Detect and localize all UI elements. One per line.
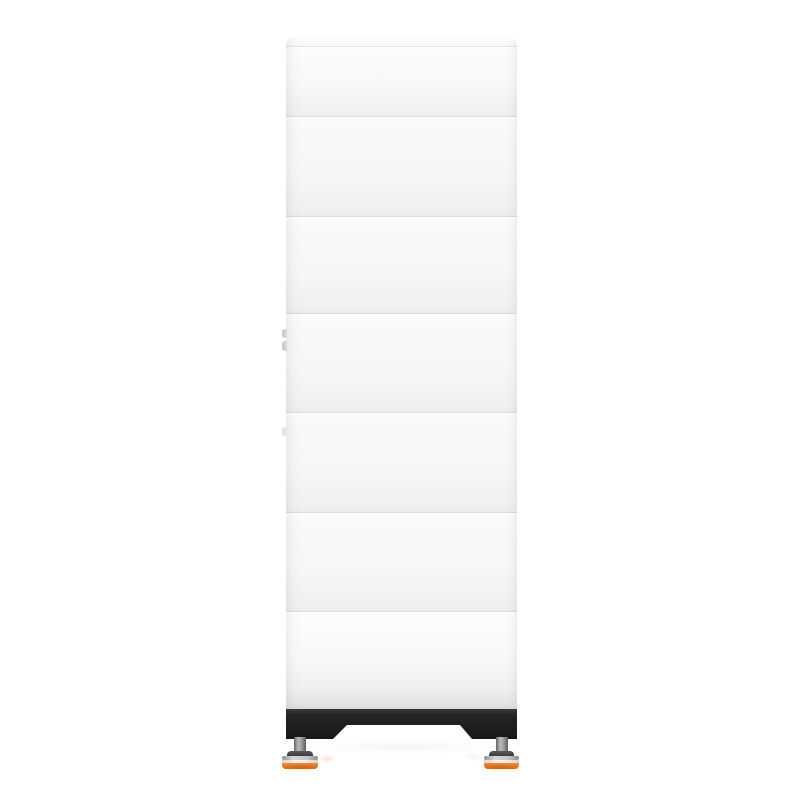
battery-module <box>286 413 517 513</box>
orange-reflection <box>318 755 336 762</box>
top-cover-lid <box>286 37 517 47</box>
foot-contact-shadow <box>279 764 321 770</box>
battery-module <box>286 217 517 314</box>
battery-module <box>286 513 517 612</box>
black-base-plinth <box>286 709 517 739</box>
floor-shadow <box>305 742 501 752</box>
left-edge-tab <box>282 427 287 436</box>
floor-smudge <box>464 753 484 760</box>
battery-tower <box>286 37 517 709</box>
foot-contact-shadow <box>480 764 522 770</box>
left-edge-tab <box>282 329 287 338</box>
battery-module <box>286 612 517 709</box>
battery-module <box>286 314 517 413</box>
battery-module <box>286 117 517 217</box>
left-edge-tab <box>282 341 287 351</box>
product-photo-canvas <box>0 0 800 800</box>
tower-stack <box>286 37 517 709</box>
top-control-unit <box>286 47 517 117</box>
